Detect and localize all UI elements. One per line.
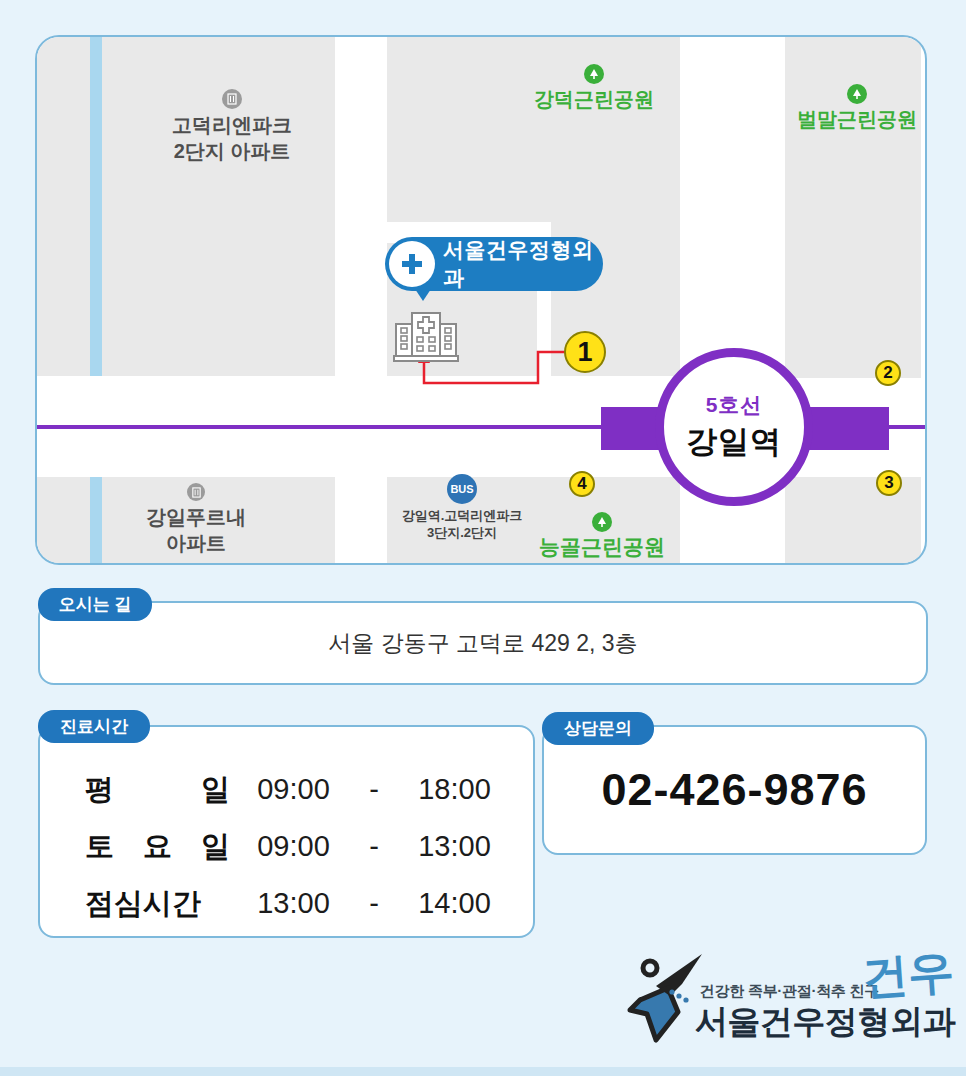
clinic-logo-figure xyxy=(626,952,706,1052)
hours-start: 09:00 xyxy=(246,773,341,806)
bubble-tail xyxy=(415,289,431,301)
exit-marker-2: 2 xyxy=(875,360,901,386)
address-text: 서울 강동구 고덕로 429 2, 3층 xyxy=(328,628,637,659)
hours-label: 평 일 xyxy=(85,770,230,810)
exit-marker-1: 1 xyxy=(564,331,606,373)
address-box: 서울 강동구 고덕로 429 2, 3층 xyxy=(38,601,928,685)
hours-box: 평 일 09:00 - 18:00 토 요 일 09:00 - 13:00 점심… xyxy=(38,725,535,938)
clinic-marker-bubble: 서울건우정형외과 xyxy=(385,237,603,291)
hours-separator: - xyxy=(341,887,407,920)
footer-clinic-name: 서울건우정형외과 xyxy=(695,1000,955,1045)
clinic-location-flyer: 5호선 강일역 고덕리엔파크 2단지 아파트 강덕근린공원 xyxy=(0,0,966,1076)
tab-contact: 상담문의 xyxy=(542,712,654,745)
phone-number: 02-426-9876 xyxy=(601,764,867,816)
hours-label: 토 요 일 xyxy=(85,827,230,867)
hours-separator: - xyxy=(341,773,407,806)
medical-cross-icon xyxy=(389,241,435,287)
exit-marker-3: 3 xyxy=(876,470,902,496)
hours-end: 18:00 xyxy=(407,773,502,806)
clinic-marker-name: 서울건우정형외과 xyxy=(443,237,603,291)
hours-label: 점심시간 xyxy=(85,884,230,924)
route-arrow xyxy=(37,37,925,563)
hospital-building-icon xyxy=(392,310,460,364)
tab-hours: 진료시간 xyxy=(38,710,150,743)
hours-row-lunch: 점심시간 13:00 - 14:00 xyxy=(40,875,533,932)
hours-end: 14:00 xyxy=(407,887,502,920)
hours-start: 13:00 xyxy=(246,887,341,920)
hours-row-weekday: 평 일 09:00 - 18:00 xyxy=(40,761,533,818)
hours-row-saturday: 토 요 일 09:00 - 13:00 xyxy=(40,818,533,875)
footer-signature: 건우 xyxy=(860,941,956,1009)
hours-separator: - xyxy=(341,830,407,863)
exit-marker-4: 4 xyxy=(569,471,595,497)
tab-directions: 오시는 길 xyxy=(38,588,152,621)
location-map: 5호선 강일역 고덕리엔파크 2단지 아파트 강덕근린공원 xyxy=(35,35,927,565)
hours-start: 09:00 xyxy=(246,830,341,863)
bottom-strip xyxy=(0,1067,966,1076)
hours-end: 13:00 xyxy=(407,830,502,863)
footer-tagline: 건강한 족부·관절·척추 친구 xyxy=(700,982,879,1001)
